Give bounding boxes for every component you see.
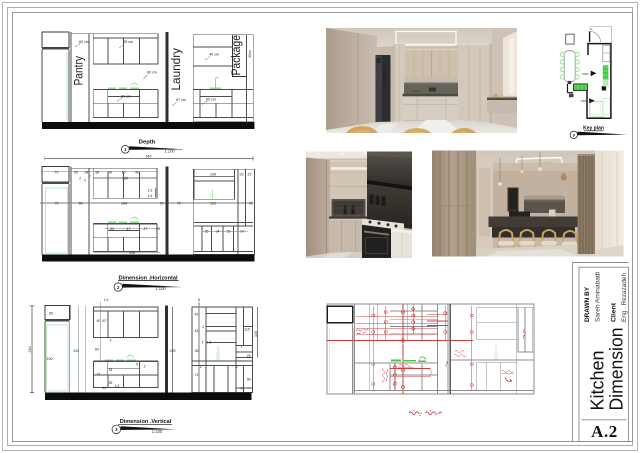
- svg-text:34: 34: [216, 230, 220, 234]
- svg-text:0: 0: [573, 133, 575, 137]
- svg-text:20: 20: [74, 170, 78, 174]
- svg-text:25: 25: [247, 354, 251, 358]
- svg-text:35: 35: [109, 381, 113, 385]
- svg-text:5: 5: [136, 363, 138, 367]
- svg-text:70: 70: [55, 202, 59, 206]
- svg-text:5: 5: [236, 365, 238, 369]
- svg-text:2: 2: [117, 285, 120, 290]
- svg-text:184: 184: [122, 177, 128, 181]
- svg-text:1.6: 1.6: [148, 194, 153, 198]
- svg-text:Client: Client: [611, 303, 618, 322]
- svg-text:60: 60: [95, 347, 99, 351]
- svg-text:60: 60: [195, 349, 199, 353]
- svg-text:47: 47: [143, 227, 147, 231]
- svg-text:67 cm: 67 cm: [176, 98, 186, 102]
- svg-text:43: 43: [195, 329, 199, 333]
- svg-text:71: 71: [97, 373, 101, 377]
- svg-text:40 cm: 40 cm: [209, 53, 219, 57]
- svg-text:2: 2: [200, 365, 202, 369]
- svg-text:VIEW: VIEW: [582, 73, 589, 76]
- svg-text:90: 90: [249, 202, 253, 206]
- svg-text:8: 8: [198, 298, 200, 302]
- svg-text:2: 2: [202, 341, 204, 345]
- svg-text:38: 38: [95, 170, 99, 174]
- svg-text:Pantry: Pantry: [74, 56, 86, 86]
- svg-text:90: 90: [97, 319, 101, 323]
- svg-text:Dimension: Dimension: [607, 328, 627, 411]
- svg-text:240: 240: [28, 347, 32, 353]
- svg-text:2: 2: [110, 339, 112, 343]
- svg-text:Eng . Rezazadeh: Eng . Rezazadeh: [621, 273, 628, 322]
- svg-text:33: 33: [110, 227, 114, 231]
- svg-text:71: 71: [195, 373, 199, 377]
- svg-text:1:100: 1:100: [155, 286, 166, 291]
- svg-text:2: 2: [241, 344, 243, 348]
- svg-text:60 cm: 60 cm: [147, 71, 157, 75]
- svg-text:50: 50: [49, 312, 53, 316]
- svg-text:34: 34: [109, 368, 113, 372]
- svg-text:80 cm: 80 cm: [121, 95, 131, 99]
- svg-text:50: 50: [247, 378, 251, 382]
- svg-text:1.6: 1.6: [148, 189, 153, 193]
- svg-text:Sareh Aminabadi: Sareh Aminabadi: [595, 271, 602, 322]
- svg-text:2: 2: [144, 365, 146, 369]
- svg-text:A.2: A.2: [591, 422, 618, 441]
- svg-text:60: 60: [79, 202, 83, 206]
- svg-text:60 cm: 60 cm: [79, 40, 89, 44]
- svg-text:67: 67: [241, 230, 245, 234]
- svg-text:60 cm: 60 cm: [206, 98, 216, 102]
- svg-text:VIEW: VIEW: [581, 100, 588, 103]
- svg-text:240: 240: [73, 349, 79, 353]
- svg-text:Laundry: Laundry: [171, 48, 183, 91]
- svg-text:140: 140: [254, 331, 258, 337]
- svg-text:70: 70: [55, 170, 59, 174]
- svg-text:35 cm: 35 cm: [123, 40, 133, 44]
- svg-text:1.6: 1.6: [207, 341, 212, 345]
- svg-text:40: 40: [108, 170, 112, 174]
- svg-text:1: 1: [124, 147, 127, 152]
- svg-text:23: 23: [248, 172, 252, 176]
- svg-text:657: 657: [146, 154, 152, 158]
- svg-text:184: 184: [121, 202, 127, 206]
- svg-text:35: 35: [227, 230, 231, 234]
- svg-text:Package: Package: [231, 35, 243, 76]
- svg-text:40: 40: [135, 170, 139, 174]
- svg-text:70: 70: [177, 202, 181, 206]
- svg-text:109: 109: [210, 172, 216, 176]
- svg-text:1.6: 1.6: [115, 384, 120, 388]
- svg-text:110: 110: [210, 202, 216, 206]
- svg-text:1.6: 1.6: [104, 298, 109, 302]
- svg-text:5a: 5a: [590, 28, 593, 31]
- svg-text:2: 2: [84, 179, 86, 183]
- svg-text:2: 2: [79, 177, 81, 181]
- svg-text:23: 23: [240, 172, 244, 176]
- svg-text:DRAWN BY: DRAWN BY: [584, 286, 591, 322]
- svg-text:42: 42: [195, 313, 199, 317]
- svg-text:100: 100: [47, 357, 53, 361]
- svg-text:47: 47: [126, 227, 130, 231]
- svg-text:Kitchen: Kitchen: [588, 351, 608, 411]
- svg-text:Depth: Depth: [139, 139, 156, 145]
- svg-text:1:100: 1:100: [152, 429, 163, 434]
- svg-text:35: 35: [205, 230, 209, 234]
- svg-text:40cm: 40cm: [248, 50, 252, 58]
- svg-text:33: 33: [156, 227, 160, 231]
- svg-text:67: 67: [103, 319, 107, 323]
- svg-text:115: 115: [244, 327, 250, 331]
- svg-text:1:100: 1:100: [164, 149, 175, 154]
- svg-text:2: 2: [202, 325, 204, 329]
- svg-text:14: 14: [102, 386, 106, 390]
- svg-text:225: 225: [170, 349, 176, 353]
- svg-text:29: 29: [160, 202, 164, 206]
- svg-text:2: 2: [89, 175, 91, 179]
- svg-text:14: 14: [240, 387, 244, 391]
- svg-text:3: 3: [115, 427, 118, 432]
